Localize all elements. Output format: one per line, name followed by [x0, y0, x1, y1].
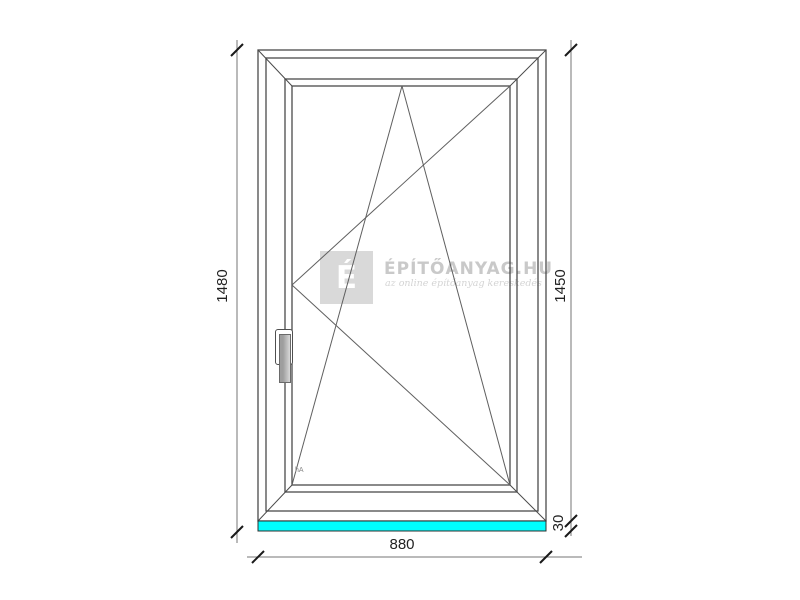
sash-corner-label: hA	[295, 467, 304, 474]
tilt-opening-lines	[292, 86, 510, 485]
dim-width-label: 880	[372, 536, 432, 552]
sash-outer-edge	[285, 79, 517, 492]
tilt-line-right	[402, 86, 510, 485]
miter-top-left	[258, 50, 292, 86]
dim-height-frame-label: 1450	[552, 256, 568, 316]
turn-line-top	[292, 86, 510, 285]
window-line-drawing	[0, 0, 800, 600]
dimension-lines	[237, 40, 582, 557]
glass-edge	[292, 86, 510, 485]
window-drawing-canvas: É ÉPÍTŐANYAG.HU az online építőanyag ker…	[0, 0, 800, 600]
frame-inner-edge	[266, 58, 538, 511]
tilt-line-left	[292, 86, 402, 485]
window-sash	[285, 79, 517, 492]
window-sill	[258, 521, 546, 531]
turn-opening-lines	[292, 86, 510, 485]
miter-bottom-right	[510, 485, 546, 521]
miter-bottom-left	[258, 485, 292, 521]
dim-sill-height-label: 30	[550, 508, 566, 538]
miter-top-right	[510, 50, 546, 86]
turn-line-bottom	[292, 285, 510, 485]
handle-grip	[279, 334, 291, 383]
dim-height-total-label: 1480	[214, 256, 230, 316]
